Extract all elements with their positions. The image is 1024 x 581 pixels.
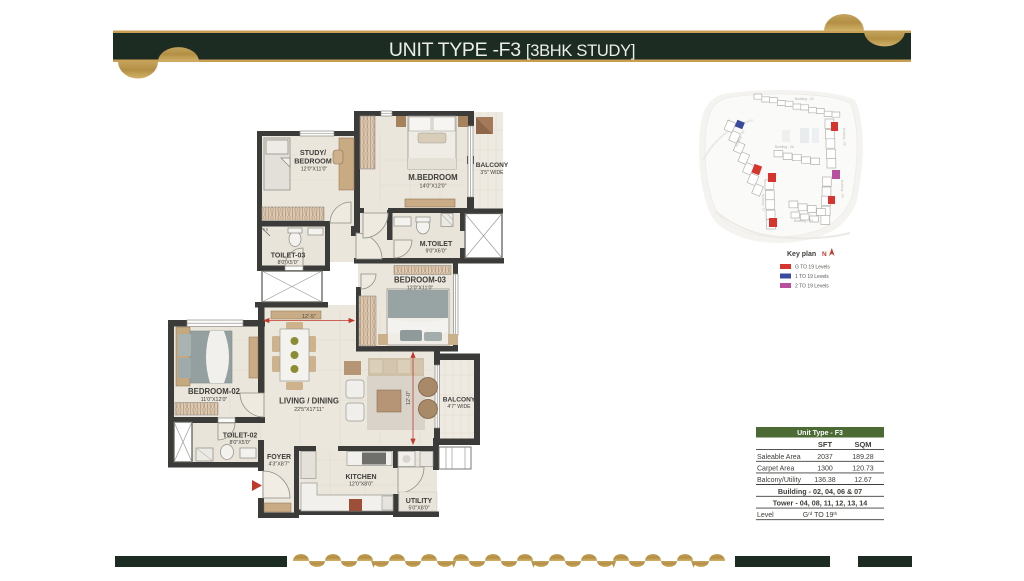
svg-text:FOYER: FOYER <box>267 454 291 461</box>
svg-text:12'0"X11'0": 12'0"X11'0" <box>407 286 434 292</box>
svg-text:120.73: 120.73 <box>852 466 874 473</box>
svg-text:BALCONY: BALCONY <box>443 397 476 404</box>
svg-text:SQM: SQM <box>854 440 871 449</box>
svg-text:Building - 05: Building - 05 <box>842 128 847 146</box>
svg-text:BEDROOM: BEDROOM <box>294 157 332 166</box>
svg-text:12'0"X11'0": 12'0"X11'0" <box>301 167 328 173</box>
svg-text:189.28: 189.28 <box>852 454 874 461</box>
svg-text:Level: Level <box>757 512 774 519</box>
svg-text:M.BEDROOM: M.BEDROOM <box>408 173 457 182</box>
svg-text:5'0"X8'0": 5'0"X8'0" <box>408 506 429 512</box>
svg-text:12'-0": 12'-0" <box>406 391 412 405</box>
svg-text:Building - 03: Building - 03 <box>794 219 813 223</box>
svg-text:Tower - 04, 08, 11, 12, 13, 14: Tower - 04, 08, 11, 12, 13, 14 <box>773 499 868 508</box>
svg-text:Grd TO 19th: Grd TO 19th <box>803 511 838 519</box>
svg-text:12.67: 12.67 <box>854 477 872 484</box>
svg-text:1 TO 19 Levels: 1 TO 19 Levels <box>795 274 829 280</box>
svg-text:14'0"X12'0": 14'0"X12'0" <box>420 184 447 190</box>
svg-text:M.TOILET: M.TOILET <box>420 241 453 248</box>
svg-text:2037: 2037 <box>817 454 833 461</box>
svg-text:Unit Type - F3: Unit Type - F3 <box>797 430 843 437</box>
svg-text:LIVING / DINING: LIVING / DINING <box>279 397 339 406</box>
svg-text:UTILITY: UTILITY <box>406 498 433 505</box>
svg-text:Balcony/Utility: Balcony/Utility <box>757 477 801 484</box>
svg-text:4'7" WIDE: 4'7" WIDE <box>447 404 471 410</box>
svg-text:9'0"X6'0": 9'0"X6'0" <box>425 249 446 255</box>
svg-text:TOILET-03: TOILET-03 <box>271 253 306 260</box>
svg-text:12'0"X8'0": 12'0"X8'0" <box>349 482 373 488</box>
svg-text:BEDROOM-03: BEDROOM-03 <box>394 276 447 285</box>
svg-text:BEDROOM-02: BEDROOM-02 <box>188 387 241 396</box>
svg-text:SFT: SFT <box>818 440 833 449</box>
svg-text:Building - 06: Building - 06 <box>775 145 794 149</box>
svg-text:4'3"X8'7": 4'3"X8'7" <box>268 462 289 468</box>
svg-text:Saleable Area: Saleable Area <box>757 454 801 461</box>
svg-text:UNIT TYPE -F3 [3BHK STUDY]: UNIT TYPE -F3 [3BHK STUDY] <box>389 39 635 61</box>
svg-text:3'5" WIDE: 3'5" WIDE <box>480 170 504 176</box>
svg-text:Building - 01: Building - 01 <box>795 97 814 101</box>
svg-text:12'-5": 12'-5" <box>302 314 316 320</box>
svg-text:1300: 1300 <box>817 466 833 473</box>
svg-text:Building - 04: Building - 04 <box>840 180 845 198</box>
svg-text:2 TO 19 Levels: 2 TO 19 Levels <box>795 284 829 290</box>
svg-text:Key plan: Key plan <box>787 251 816 258</box>
svg-text:BALCONY: BALCONY <box>476 162 509 169</box>
svg-text:G TO 19 Levels: G TO 19 Levels <box>795 265 830 271</box>
svg-text:22'5"X17'11": 22'5"X17'11" <box>294 407 324 413</box>
svg-text:TOILET-02: TOILET-02 <box>223 433 258 440</box>
svg-text:8'0"X5'0": 8'0"X5'0" <box>229 440 250 446</box>
svg-text:KITCHEN: KITCHEN <box>345 474 376 481</box>
svg-text:11'0"X12'0": 11'0"X12'0" <box>201 397 228 403</box>
svg-text:Building - 07: Building - 07 <box>761 194 766 212</box>
svg-text:Carpet Area: Carpet Area <box>757 466 794 473</box>
svg-text:136.38: 136.38 <box>814 477 836 484</box>
svg-text:N: N <box>822 251 827 258</box>
svg-text:8'0"X5'0": 8'0"X5'0" <box>277 260 298 266</box>
svg-text:Building - 02, 04, 06 & 07: Building - 02, 04, 06 & 07 <box>778 487 862 496</box>
